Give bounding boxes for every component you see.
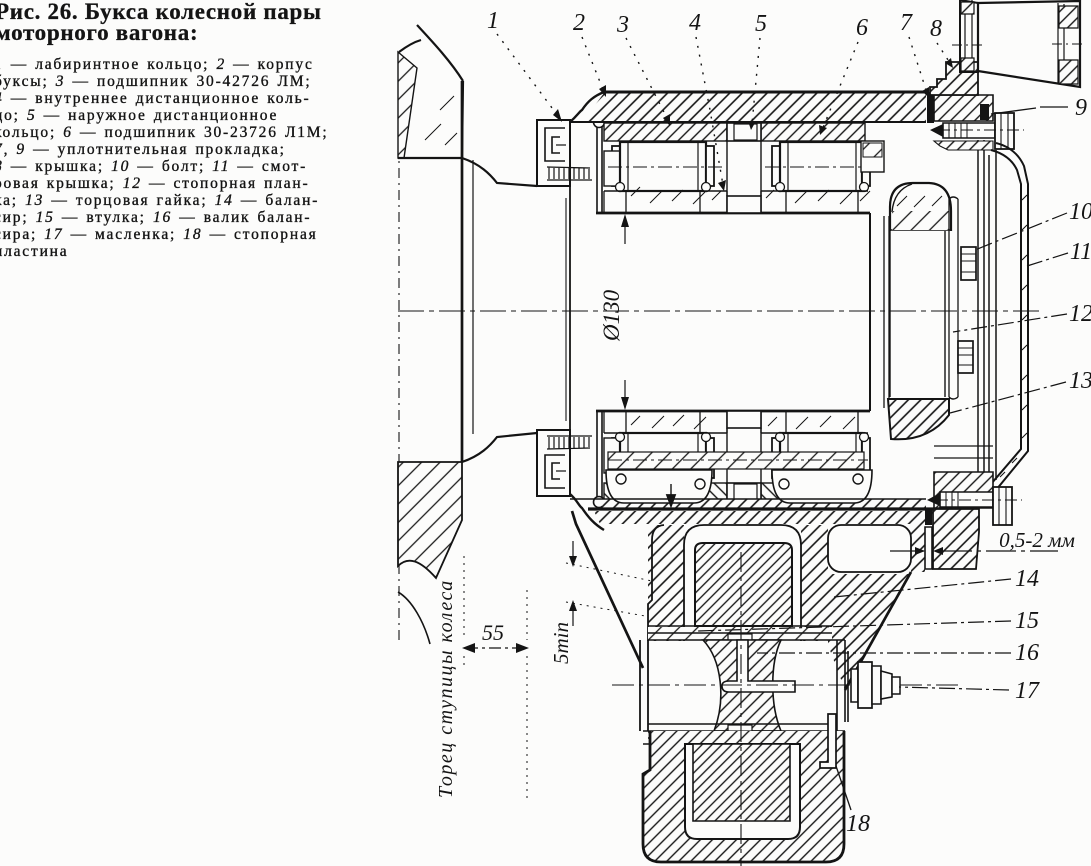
svg-text:13: 13 [1069, 368, 1091, 394]
svg-text:3: 3 [616, 12, 629, 38]
svg-text:15: 15 [1015, 608, 1039, 634]
svg-text:17: 17 [1015, 678, 1040, 704]
svg-text:8: 8 [930, 16, 942, 42]
svg-text:6: 6 [856, 15, 868, 41]
svg-text:12: 12 [1069, 301, 1091, 327]
svg-text:5min: 5min [549, 622, 573, 664]
svg-text:2: 2 [573, 10, 585, 36]
svg-text:10: 10 [1069, 199, 1091, 225]
svg-text:55: 55 [482, 620, 504, 645]
svg-text:9: 9 [1075, 95, 1087, 121]
svg-text:1: 1 [487, 8, 499, 34]
svg-text:14: 14 [1015, 566, 1039, 592]
svg-text:16: 16 [1015, 640, 1039, 666]
svg-text:5: 5 [755, 11, 767, 37]
svg-text:4: 4 [689, 10, 701, 36]
svg-text:Торец ступицы колеса: Торец ступицы колеса [435, 579, 457, 798]
svg-text:18: 18 [846, 811, 870, 837]
svg-text:11: 11 [1070, 239, 1091, 265]
svg-text:7: 7 [900, 10, 913, 36]
svg-text:Ø130: Ø130 [599, 289, 624, 342]
svg-text:0,5-2 мм: 0,5-2 мм [999, 528, 1075, 552]
